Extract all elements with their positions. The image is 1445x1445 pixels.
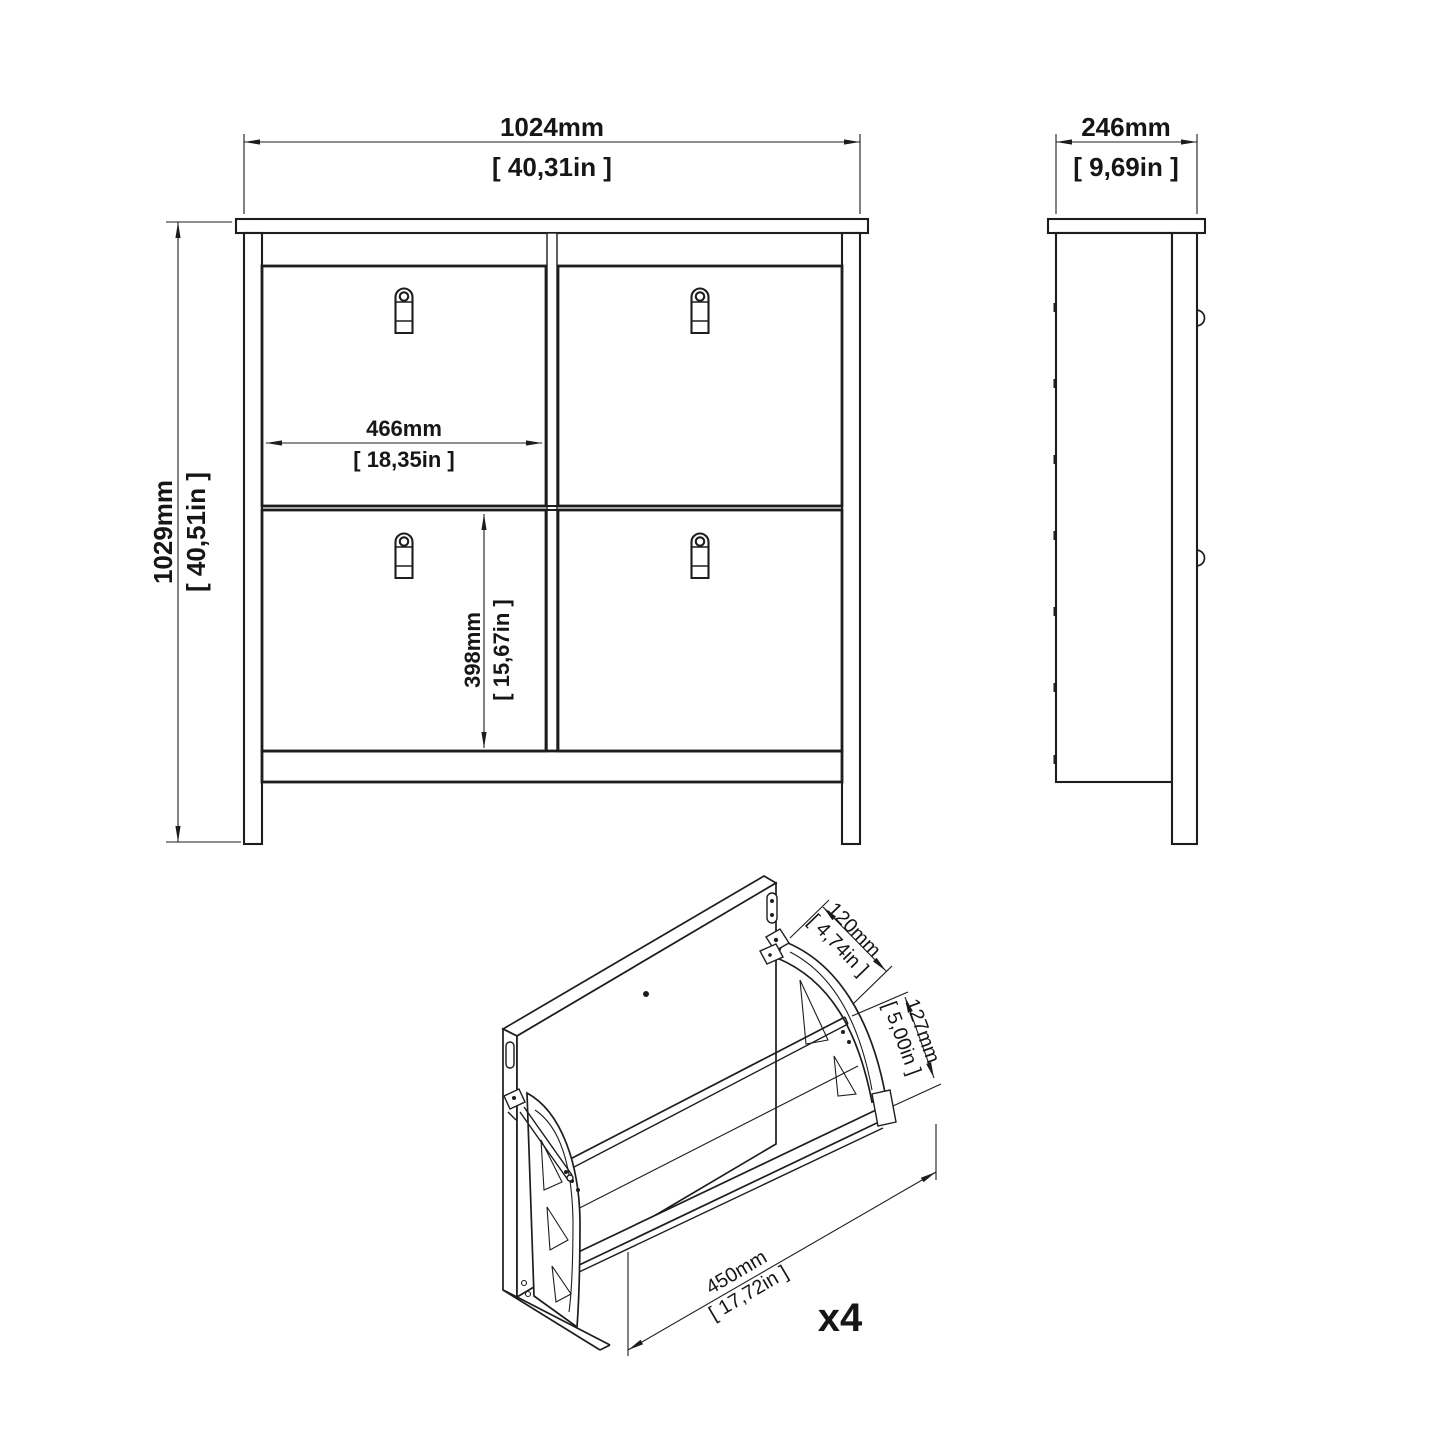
panel-screw-slot-right xyxy=(767,893,777,923)
side-front-leg xyxy=(1172,233,1197,844)
front-center-divider xyxy=(547,233,557,751)
panel-hole xyxy=(643,991,649,997)
door-handle-top-right xyxy=(692,289,709,334)
extension-line xyxy=(893,1084,941,1106)
side-top-board xyxy=(1048,219,1205,233)
door-handle-bottom-right xyxy=(692,534,709,579)
side-view: 246mm [ 9,69in ] xyxy=(1048,112,1205,844)
door-handle-bottom-left xyxy=(396,534,413,579)
dimension-label-imperial: [ 40,51in ] xyxy=(181,472,211,592)
front-height-dimension: 1029mm [ 40,51in ] xyxy=(148,222,241,842)
dimension-label-imperial: [ 18,35in ] xyxy=(353,447,454,472)
shoe-cabinet-dimension-drawing: 1024mm [ 40,31in ] 1029mm [ 40,51in ] 46… xyxy=(0,0,1445,1445)
side-handle-hook-top xyxy=(1197,310,1205,326)
flap-detail-view: 120mm [ 4,74in ] 127mm [ 5,00in ] 450mm … xyxy=(503,876,946,1356)
quantity-label: x4 xyxy=(818,1296,863,1340)
side-depth-dimension: 246mm [ 9,69in ] xyxy=(1056,112,1197,214)
dimension-label-metric: 1029mm xyxy=(148,480,178,584)
dimension-label-imperial: [ 15,67in ] xyxy=(489,599,514,700)
dimension-label-imperial: [ 40,31in ] xyxy=(492,152,612,182)
front-left-leg xyxy=(244,233,262,844)
door-handle-top-left xyxy=(396,289,413,334)
dimension-label-metric: 466mm xyxy=(366,416,442,441)
dimension-label-metric: 246mm xyxy=(1081,112,1171,142)
front-view: 1024mm [ 40,31in ] 1029mm [ 40,51in ] 46… xyxy=(148,112,868,844)
front-right-leg xyxy=(842,233,860,844)
front-cabinet-outline xyxy=(236,219,868,844)
front-bottom-rail xyxy=(262,751,842,782)
front-width-dimension: 1024mm [ 40,31in ] xyxy=(244,112,860,214)
panel-screw-slot-left xyxy=(506,1042,514,1068)
side-handle-hook-bottom xyxy=(1197,550,1205,566)
side-body-panel xyxy=(1056,233,1172,782)
dimension-label-metric: 1024mm xyxy=(500,112,604,142)
front-top-board xyxy=(236,219,868,233)
panel-side-edge xyxy=(503,1029,517,1297)
dimension-label-imperial: [ 9,69in ] xyxy=(1073,152,1178,182)
dimension-label-metric: 398mm xyxy=(460,612,485,688)
technical-drawing-page: 1024mm [ 40,31in ] 1029mm [ 40,51in ] 46… xyxy=(0,0,1445,1445)
